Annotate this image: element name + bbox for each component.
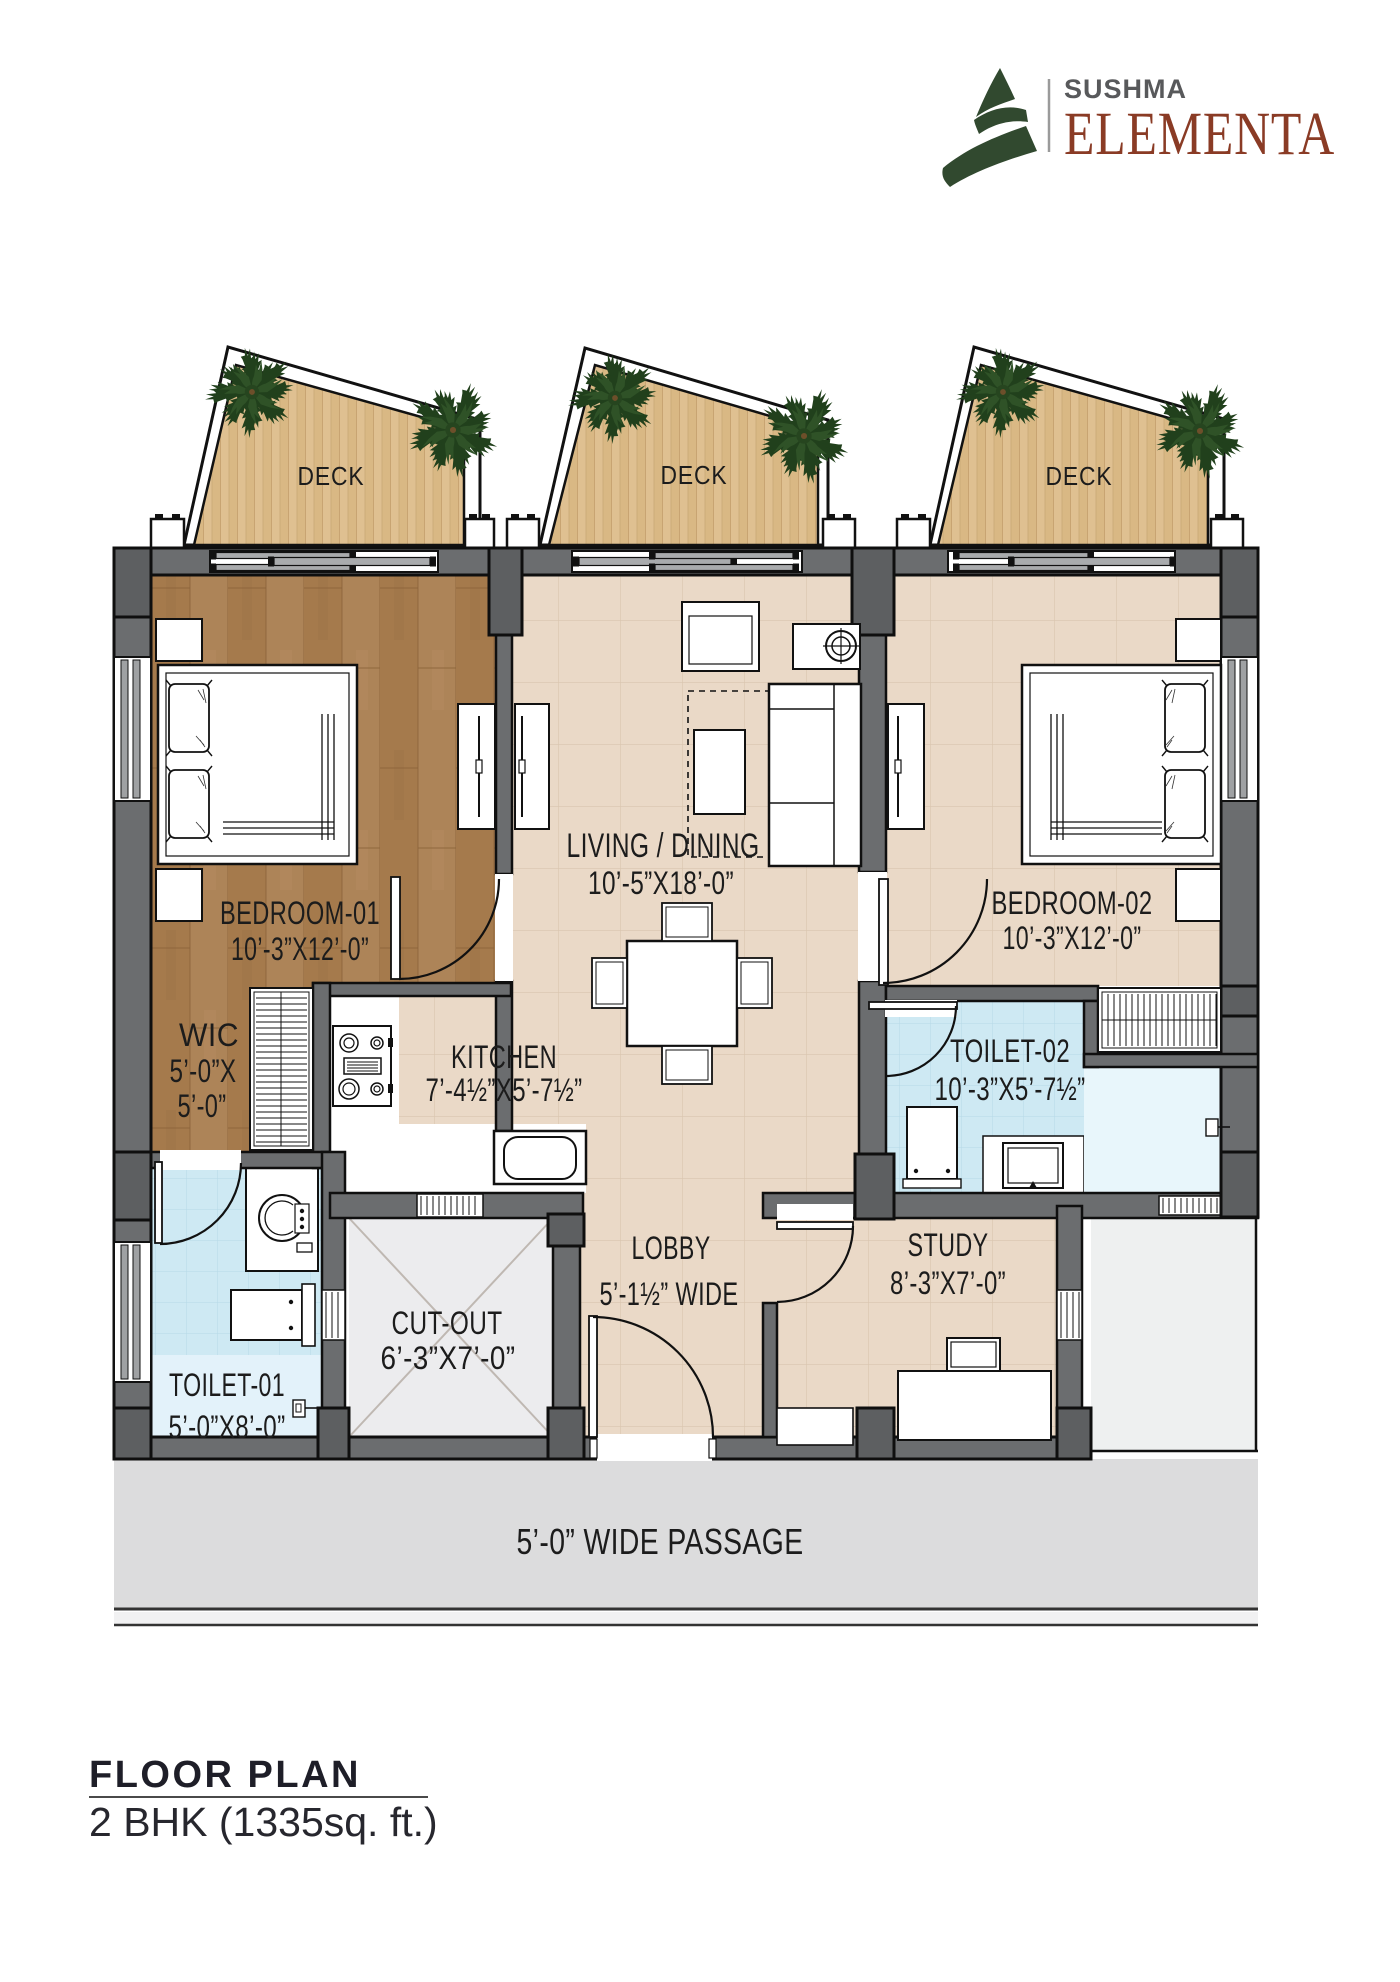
svg-text:5’-0”X: 5’-0”X <box>170 1053 237 1089</box>
svg-text:LOBBY: LOBBY <box>632 1230 711 1266</box>
svg-text:5’-0”: 5’-0” <box>178 1088 227 1124</box>
svg-text:5’-0” WIDE PASSAGE: 5’-0” WIDE PASSAGE <box>517 1521 804 1562</box>
svg-text:DECK: DECK <box>1046 461 1113 491</box>
svg-text:TOILET-01: TOILET-01 <box>169 1367 285 1403</box>
svg-text:ELEMENTA: ELEMENTA <box>1064 101 1335 168</box>
svg-text:2 BHK (1335sq. ft.): 2 BHK (1335sq. ft.) <box>89 1799 438 1845</box>
svg-text:6’-3”X7’-0”: 6’-3”X7’-0” <box>381 1340 516 1376</box>
svg-text:10’-3”X5’-7½”: 10’-3”X5’-7½” <box>935 1071 1086 1107</box>
svg-text:STUDY: STUDY <box>908 1227 989 1263</box>
svg-text:LIVING / DINING: LIVING / DINING <box>567 827 760 865</box>
svg-text:TOILET-02: TOILET-02 <box>950 1033 1070 1069</box>
svg-text:FLOOR PLAN: FLOOR PLAN <box>89 1754 361 1796</box>
svg-text:10’-3”X12’-0”: 10’-3”X12’-0” <box>231 931 369 967</box>
svg-text:BEDROOM-01: BEDROOM-01 <box>220 895 380 931</box>
svg-text:WIC: WIC <box>179 1017 239 1053</box>
svg-text:CUT-OUT: CUT-OUT <box>392 1305 503 1341</box>
svg-text:5’-1½” WIDE: 5’-1½” WIDE <box>600 1276 739 1312</box>
svg-text:10’-3”X12’-0”: 10’-3”X12’-0” <box>1003 920 1142 956</box>
svg-text:SUSHMA: SUSHMA <box>1064 74 1187 104</box>
svg-text:DECK: DECK <box>298 461 365 491</box>
svg-text:5’-0”X8’-0”: 5’-0”X8’-0” <box>169 1409 286 1445</box>
svg-text:10’-5”X18’-0”: 10’-5”X18’-0” <box>588 865 734 901</box>
svg-text:BEDROOM-02: BEDROOM-02 <box>992 885 1153 921</box>
svg-text:8’-3”X7’-0”: 8’-3”X7’-0” <box>890 1265 1006 1301</box>
svg-text:DECK: DECK <box>661 460 728 490</box>
svg-text:KITCHEN: KITCHEN <box>451 1039 557 1075</box>
svg-text:7’-4½”X5’-7½”: 7’-4½”X5’-7½” <box>426 1072 583 1108</box>
